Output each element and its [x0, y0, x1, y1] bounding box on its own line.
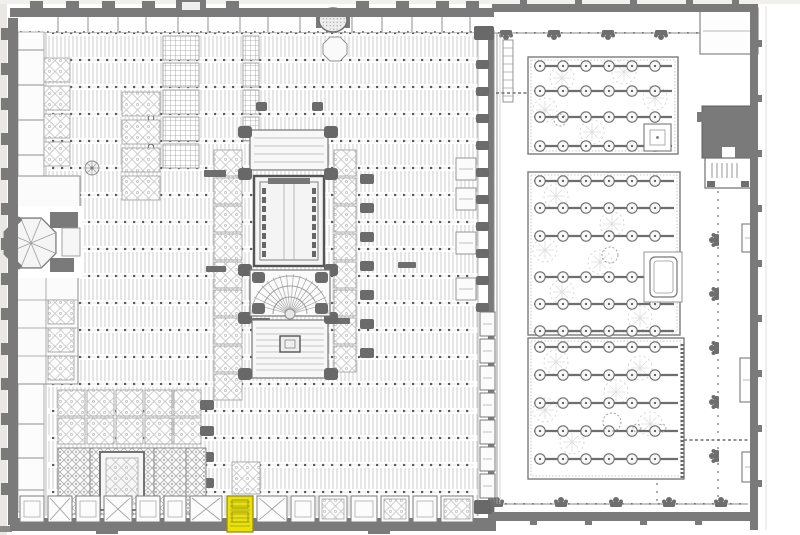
fountain-rosette [85, 161, 99, 175]
crossing-dome [250, 270, 330, 319]
highlighted-chapel[interactable] [227, 496, 253, 532]
bell-tower [697, 106, 756, 158]
perdon-gate [705, 158, 751, 188]
orange-tree-gardens [528, 57, 684, 479]
floor-plan [0, 0, 800, 535]
floor-plan-svg [0, 0, 800, 535]
cathedral [238, 126, 338, 380]
